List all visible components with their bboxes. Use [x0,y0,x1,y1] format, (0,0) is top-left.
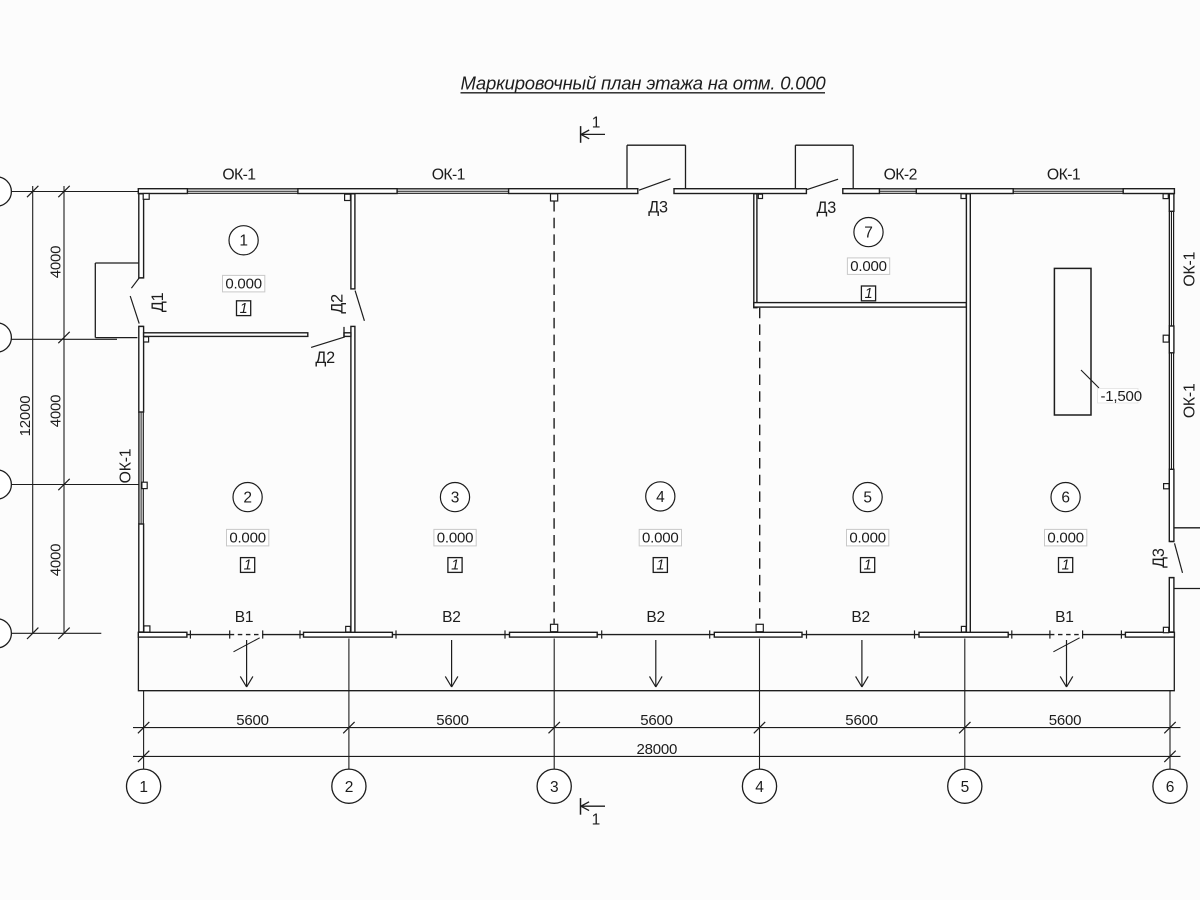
svg-text:1: 1 [244,558,252,574]
svg-text:0.000: 0.000 [225,276,262,293]
svg-text:1: 1 [451,558,459,574]
svg-text:ОК-1: ОК-1 [117,448,134,483]
svg-text:ОК-2: ОК-2 [884,167,917,184]
svg-text:5: 5 [863,490,871,507]
svg-text:3: 3 [451,490,459,507]
svg-text:В2: В2 [646,609,665,626]
svg-text:1: 1 [864,558,872,574]
svg-text:0.000: 0.000 [1047,530,1084,547]
svg-text:0.000: 0.000 [642,530,679,547]
svg-text:В1: В1 [1055,609,1074,626]
svg-text:В1: В1 [235,609,254,626]
svg-text:ОК-1: ОК-1 [432,167,466,184]
svg-text:В2: В2 [442,609,461,626]
svg-text:Маркировочный план этажа на от: Маркировочный план этажа на отм. 0.000 [460,72,826,93]
svg-text:Д3: Д3 [1150,548,1168,568]
svg-text:4: 4 [656,489,665,506]
svg-text:5600: 5600 [845,712,878,729]
svg-text:5600: 5600 [236,712,269,729]
svg-text:4: 4 [755,779,764,796]
svg-text:6: 6 [1166,779,1174,796]
svg-text:Д2: Д2 [315,349,335,367]
svg-text:1: 1 [1062,558,1070,574]
svg-text:12000: 12000 [17,396,34,437]
svg-text:28000: 28000 [636,741,677,758]
svg-text:0.000: 0.000 [849,530,886,547]
svg-text:5600: 5600 [436,712,469,729]
svg-text:5600: 5600 [1049,712,1082,729]
svg-text:ОК-1: ОК-1 [1047,167,1081,184]
svg-text:Д3: Д3 [817,199,837,217]
svg-text:ОК-1: ОК-1 [222,167,256,184]
svg-text:2: 2 [243,490,251,507]
svg-text:Д2: Д2 [328,294,346,314]
svg-text:1: 1 [239,233,247,250]
svg-text:-1,500: -1,500 [1101,388,1142,405]
svg-text:7: 7 [864,225,872,242]
svg-text:1: 1 [592,812,600,829]
svg-text:ОК-1: ОК-1 [1181,383,1198,418]
svg-text:6: 6 [1061,490,1069,507]
svg-text:5600: 5600 [640,712,673,729]
svg-text:В2: В2 [851,609,870,626]
svg-text:Д3: Д3 [648,199,668,217]
svg-text:2: 2 [345,779,353,796]
svg-text:5: 5 [961,779,969,796]
svg-text:0.000: 0.000 [437,530,474,547]
svg-text:ОК-1: ОК-1 [1181,251,1198,286]
svg-text:1: 1 [139,779,147,796]
svg-text:0.000: 0.000 [229,530,266,547]
svg-text:1: 1 [592,115,600,132]
svg-text:1: 1 [656,558,664,574]
svg-text:Д1: Д1 [149,292,167,312]
svg-text:3: 3 [550,779,558,796]
svg-text:1: 1 [240,301,248,317]
svg-text:4000: 4000 [47,544,64,577]
svg-text:0.000: 0.000 [850,258,887,275]
svg-text:4000: 4000 [47,395,64,428]
svg-text:1: 1 [865,286,873,302]
svg-text:4000: 4000 [47,246,64,279]
